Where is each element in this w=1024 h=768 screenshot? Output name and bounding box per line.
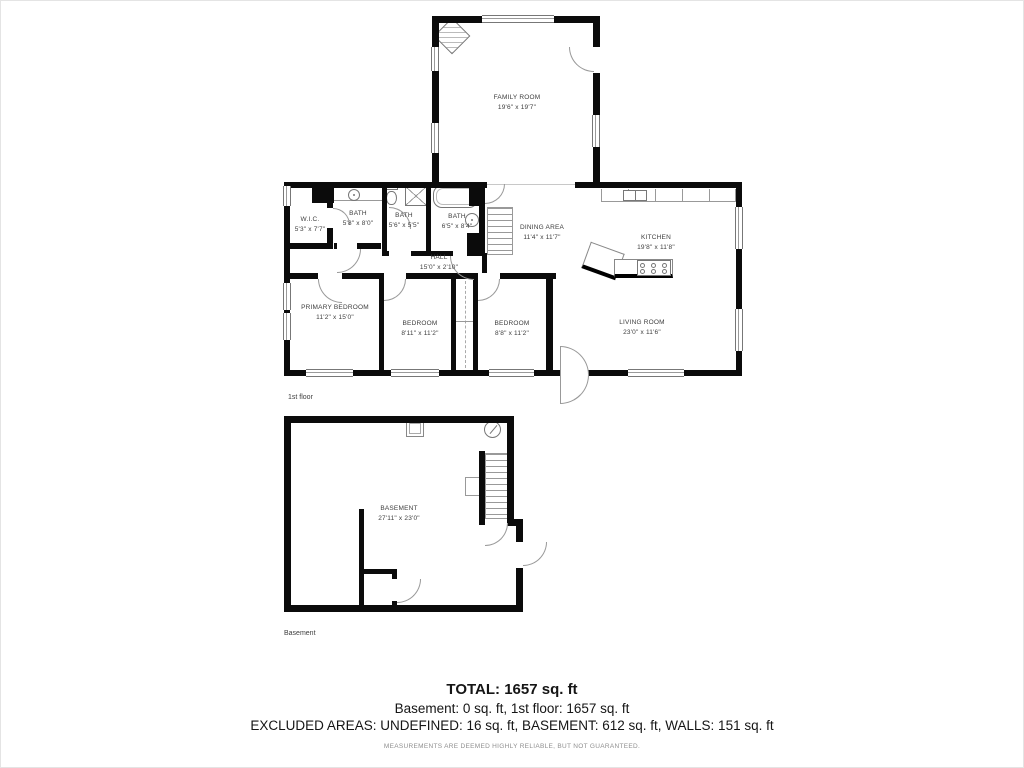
room-dims: 5'8" x 8'0" (331, 219, 385, 229)
room-name: PRIMARY BEDROOM (290, 303, 380, 313)
room-dims: 19'8" x 11'8" (616, 243, 696, 253)
door-opening (516, 542, 523, 568)
room-dims: 19'6" x 19'7" (472, 103, 562, 113)
room-label-bath-2: BATH 5'6" x 5'5" (382, 211, 426, 232)
window (431, 123, 439, 153)
window (628, 369, 684, 377)
room-label-bedroom-2: BEDROOM 8'8" x 11'2" (477, 319, 547, 340)
wall-segment (479, 451, 485, 525)
basement-caption: Basement (284, 630, 316, 637)
room-name: BASEMENT (354, 504, 444, 514)
window (735, 207, 743, 249)
room-name: HALL (404, 253, 474, 263)
excluded-areas-text: EXCLUDED AREAS: UNDEFINED: 16 sq. ft, BA… (1, 718, 1023, 733)
stair-landing (465, 477, 480, 496)
window (489, 369, 534, 377)
window (391, 369, 439, 377)
door-opening (593, 47, 600, 73)
room-label-basement: BASEMENT 27'11" x 23'0" (354, 504, 444, 525)
room-name: BEDROOM (385, 319, 455, 329)
room-dims: 8'8" x 11'2" (477, 329, 547, 339)
wall-segment (426, 182, 431, 256)
room-dims: 27'11" x 23'0" (354, 514, 444, 524)
wall-segment (546, 273, 553, 370)
room-label-bath-1: BATH 5'8" x 8'0" (331, 209, 385, 230)
toilet-icon (386, 191, 397, 205)
room-label-living-room: LIVING ROOM 23'0" x 11'6" (597, 318, 687, 339)
kitchen-sink-icon (623, 190, 647, 201)
sink-icon (348, 189, 360, 201)
window (431, 47, 439, 71)
door-arc (485, 523, 508, 546)
meter-icon (484, 421, 501, 438)
room-dims: 11'2" x 15'0" (290, 313, 380, 323)
wall-segment (507, 416, 514, 526)
room-name: KITCHEN (616, 233, 696, 243)
wall-segment (432, 16, 439, 186)
window (306, 369, 353, 377)
wall-segment (284, 416, 291, 612)
disclaimer-text: MEASUREMENTS ARE DEEMED HIGHLY RELIABLE,… (1, 743, 1023, 750)
window (735, 309, 743, 351)
room-name: DINING AREA (502, 223, 582, 233)
floor-areas-text: Basement: 0 sq. ft, 1st floor: 1657 sq. … (1, 701, 1023, 716)
room-label-dining-area: DINING AREA 11'4" x 11'7" (502, 223, 582, 244)
wall-segment (284, 605, 523, 612)
room-label-kitchen: KITCHEN 19'8" x 11'8" (616, 233, 696, 254)
wall-segment (284, 416, 514, 423)
room-name: BEDROOM (477, 319, 547, 329)
room-label-bath-3: BATH 6'5" x 8'4" (432, 212, 482, 233)
wall-segment (593, 16, 600, 182)
room-label-wic: W.I.C. 5'3" x 7'7" (282, 215, 338, 236)
floor-plan-page: FAMILY ROOM 19'6" x 19'7" W.I.C. 5'3" x … (0, 0, 1024, 768)
staircase (485, 453, 508, 519)
room-label-hall: HALL 15'0" x 2'10" (404, 253, 474, 274)
room-dims: 23'0" x 11'6" (597, 328, 687, 338)
total-area-text: TOTAL: 1657 sq. ft (1, 681, 1023, 698)
room-label-primary-bedroom: PRIMARY BEDROOM 11'2" x 15'0" (290, 303, 380, 324)
first-floor-caption: 1st floor (288, 394, 313, 401)
room-dims: 11'4" x 11'7" (502, 233, 582, 243)
area-summary: TOTAL: 1657 sq. ft Basement: 0 sq. ft, 1… (1, 681, 1023, 750)
basement-plan: BASEMENT 27'11" x 23'0" (1, 1, 1023, 767)
stove-icon (637, 260, 671, 276)
closet (456, 279, 473, 370)
wall-segment (284, 243, 333, 249)
room-label-bedroom-1: BEDROOM 8'11" x 11'2" (385, 319, 455, 340)
room-dims: 8'11" x 11'2" (385, 329, 455, 339)
room-name: FAMILY ROOM (472, 93, 562, 103)
room-name: LIVING ROOM (597, 318, 687, 328)
window (283, 186, 291, 206)
room-name: BATH (382, 211, 426, 221)
closet-divider (456, 321, 473, 322)
room-label-family-room: FAMILY ROOM 19'6" x 19'7" (472, 93, 562, 114)
room-dims: 15'0" x 2'10" (404, 263, 474, 273)
window (482, 15, 554, 23)
room-name: BATH (331, 209, 385, 219)
shower-icon (405, 186, 427, 206)
kitchen-counter (601, 189, 736, 202)
door-arc (523, 542, 547, 566)
room-dims: 5'3" x 7'7" (282, 225, 338, 235)
room-name: BATH (432, 212, 482, 222)
room-name: W.I.C. (282, 215, 338, 225)
door-arc (397, 579, 421, 603)
window (592, 115, 600, 147)
room-dims: 6'5" x 8'4" (432, 222, 482, 232)
room-dims: 5'6" x 5'5" (382, 221, 426, 231)
